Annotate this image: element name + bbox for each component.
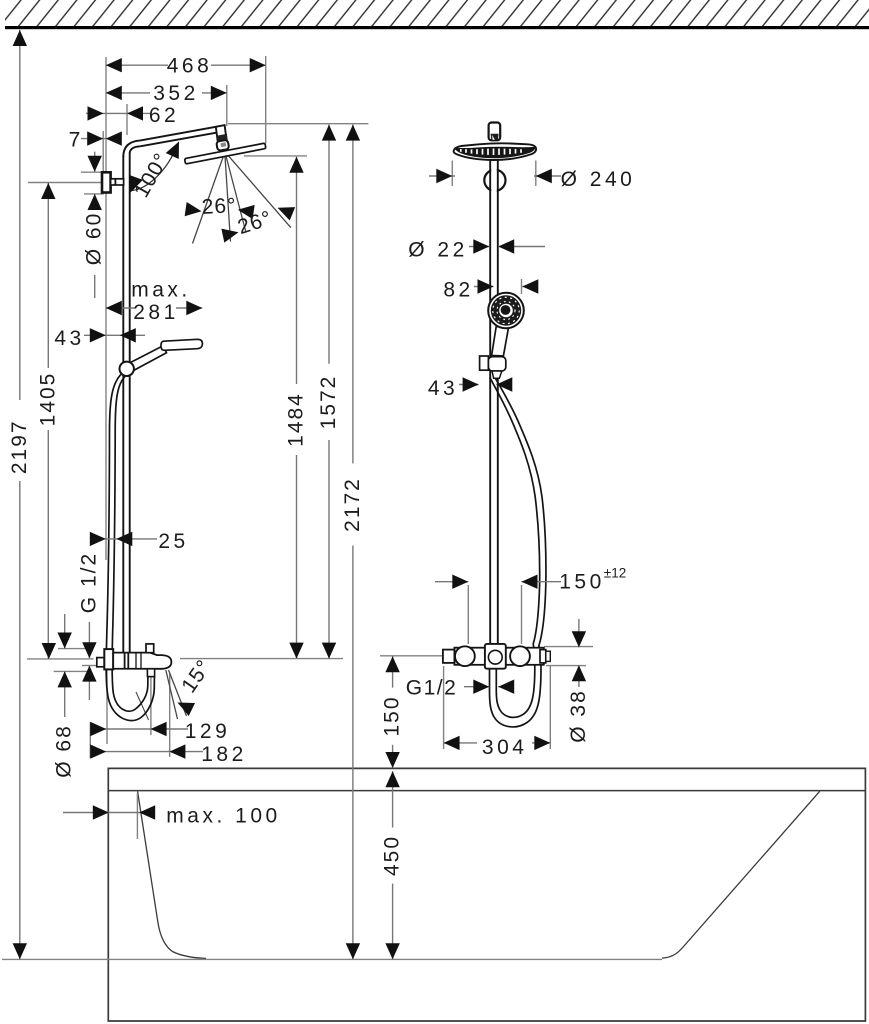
svg-text:Ø 60: Ø 60 [83, 212, 106, 266]
svg-text:62: 62 [149, 104, 179, 127]
svg-text:43: 43 [428, 377, 458, 400]
svg-text:7: 7 [69, 128, 81, 151]
svg-text:max. 100: max. 100 [166, 804, 280, 827]
svg-text:Ø 38: Ø 38 [567, 689, 590, 743]
svg-text:1572: 1572 [317, 375, 340, 430]
svg-text:150: 150 [381, 695, 404, 736]
svg-text:1405: 1405 [36, 372, 59, 427]
svg-text:Ø 240: Ø 240 [561, 168, 636, 191]
svg-text:450: 450 [381, 835, 404, 876]
svg-text:2197: 2197 [8, 419, 31, 474]
svg-text:max.: max. [131, 279, 191, 302]
svg-text:±12: ±12 [604, 565, 626, 580]
svg-text:26°: 26° [201, 194, 237, 219]
svg-text:352: 352 [153, 82, 199, 105]
svg-text:281: 281 [133, 301, 179, 324]
svg-text:468: 468 [167, 55, 213, 78]
svg-text:Ø 22: Ø 22 [408, 238, 468, 261]
svg-text:150: 150 [559, 570, 605, 593]
svg-text:304: 304 [482, 736, 528, 759]
svg-text:G 1/2: G 1/2 [77, 552, 100, 613]
svg-text:1484: 1484 [285, 392, 308, 447]
svg-text:Ø 68: Ø 68 [53, 724, 76, 778]
svg-text:182: 182 [201, 743, 247, 766]
svg-text:82: 82 [443, 278, 473, 301]
svg-text:2172: 2172 [341, 477, 364, 532]
svg-text:43: 43 [54, 327, 84, 350]
svg-text:G1/2: G1/2 [406, 677, 458, 700]
svg-text:25: 25 [158, 530, 188, 553]
svg-text:129: 129 [185, 720, 231, 743]
